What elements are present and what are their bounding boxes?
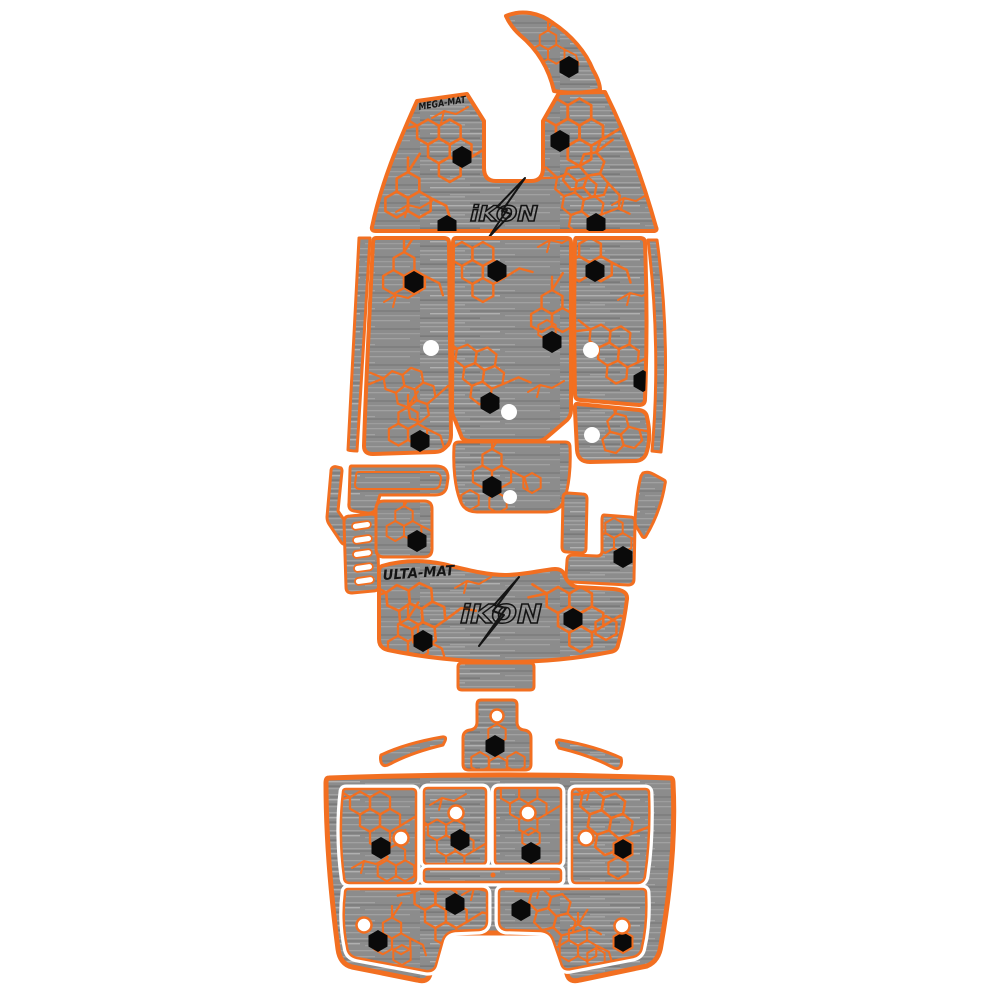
small-orange-dot	[491, 873, 496, 878]
piece-small-square-pad	[376, 492, 436, 557]
drain-hole	[394, 831, 409, 846]
rear-panel-1	[334, 789, 430, 883]
piece-cockpit-left-panel	[364, 235, 465, 454]
drain-hole	[423, 340, 439, 356]
piece-wing-trim-right	[556, 740, 621, 769]
drain-hole	[501, 404, 517, 420]
mounting-hole	[491, 710, 504, 723]
drain-hole	[521, 806, 536, 821]
piece-small-rectangle-pad	[458, 663, 534, 690]
piece-wing-trim-left	[381, 737, 446, 766]
drain-hole	[584, 427, 600, 443]
piece-cockpit-right-edge-trim	[648, 240, 666, 452]
drain-hole	[449, 806, 464, 821]
boat-mat-kit-image: MEGA-MAT iKON	[0, 0, 1000, 1000]
drain-hole	[615, 919, 630, 934]
rear-mid-strip	[424, 869, 561, 882]
black-hex-inlay	[614, 838, 633, 860]
rear-panel-bottom-left	[344, 884, 498, 972]
drain-hole	[357, 918, 372, 933]
rear-panel-2	[413, 788, 499, 872]
piece-rear-platform	[326, 775, 674, 981]
drain-hole	[503, 490, 517, 504]
mat-kit-canvas: MEGA-MAT iKON	[0, 0, 1000, 1000]
piece-transom-plug-pad	[463, 700, 531, 776]
piece-console-pad	[454, 434, 571, 513]
drain-hole	[579, 831, 594, 846]
piece-bow-main: MEGA-MAT iKON	[372, 92, 657, 242]
piece-side-strip	[562, 493, 587, 553]
rear-panel-bottom-right	[499, 880, 646, 969]
piece-bow-tip	[506, 12, 600, 92]
drain-hole	[583, 342, 599, 358]
rear-panel-4	[555, 782, 667, 883]
piece-blade-trim	[635, 472, 665, 537]
rear-panel-3	[486, 780, 572, 864]
piece-ladder-pad	[344, 514, 379, 593]
